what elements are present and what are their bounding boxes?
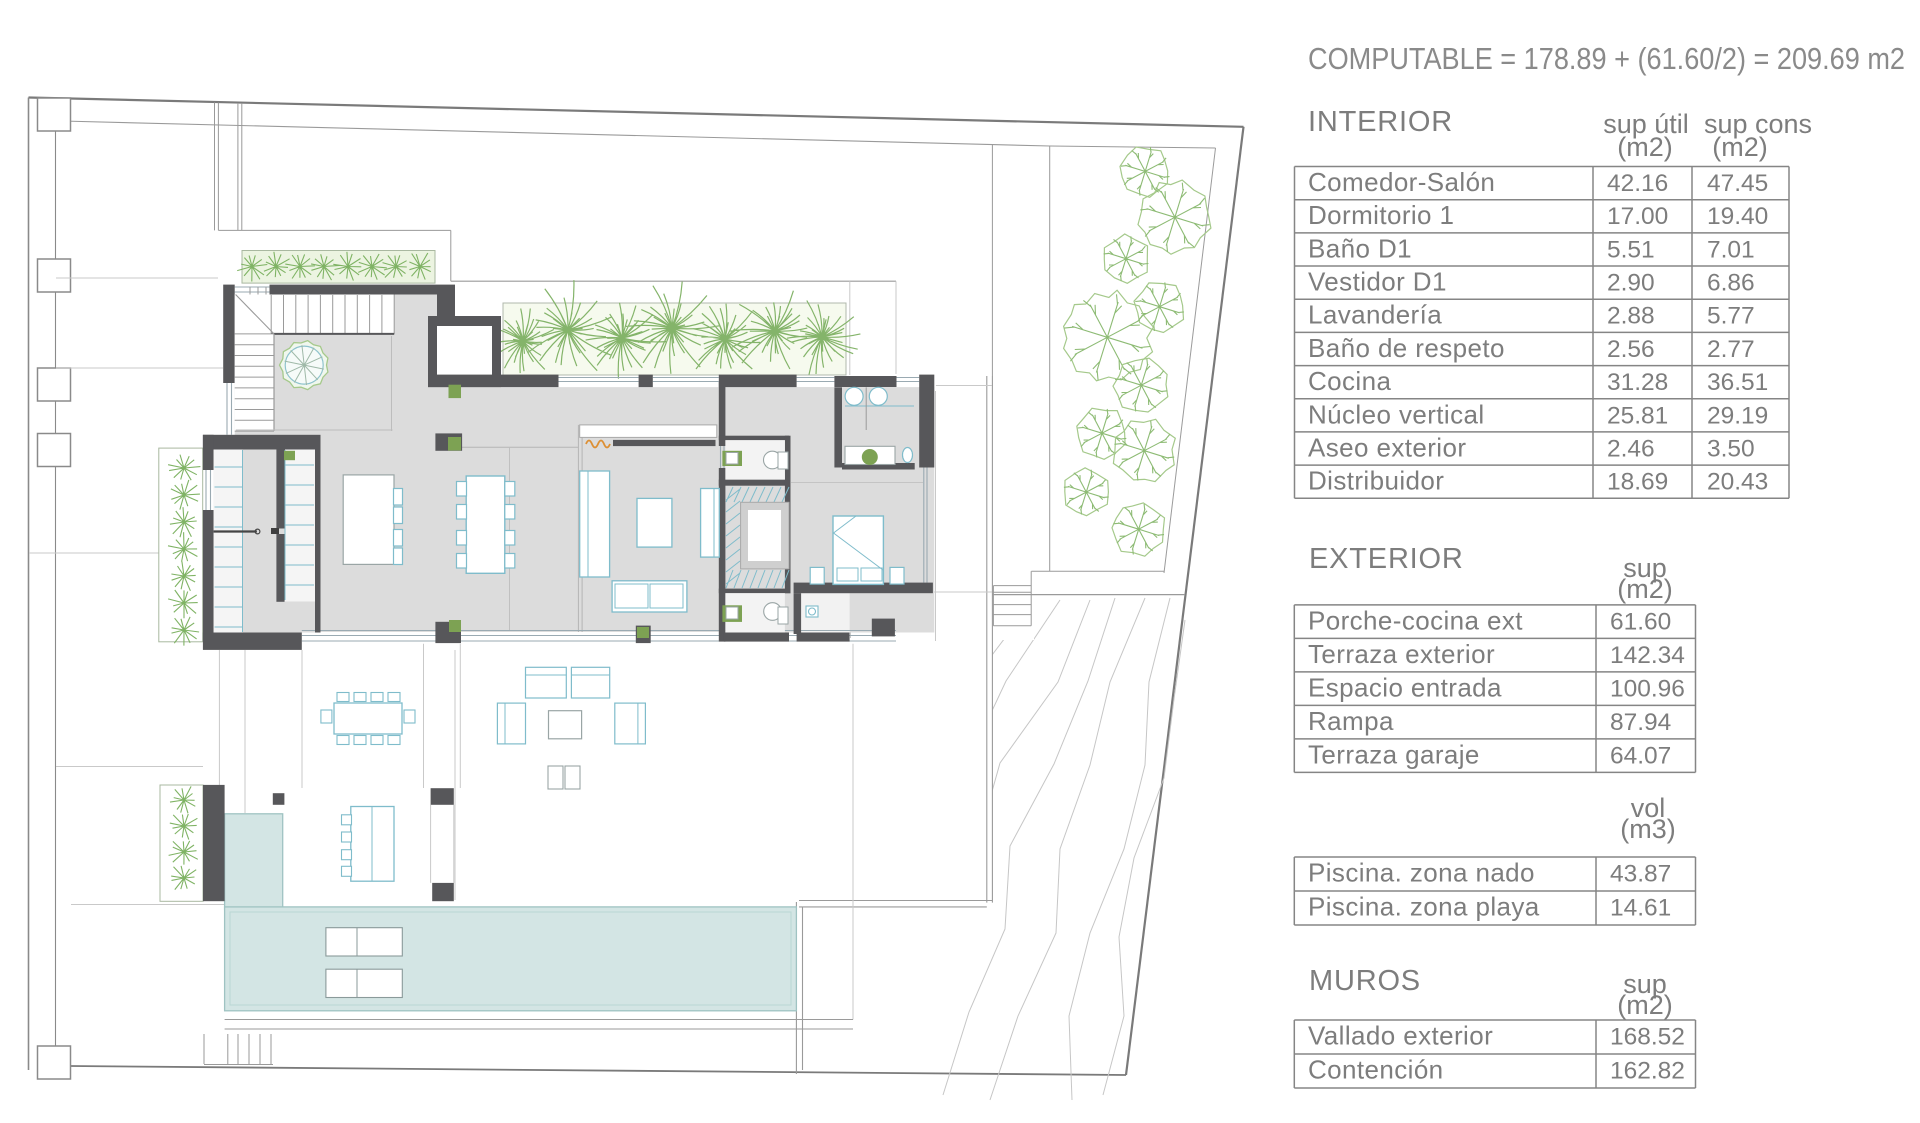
- svg-text:25.81: 25.81: [1607, 402, 1668, 429]
- svg-text:EXTERIOR: EXTERIOR: [1309, 543, 1464, 575]
- svg-text:Comedor-Salón: Comedor-Salón: [1308, 167, 1495, 197]
- svg-text:Dormitorio 1: Dormitorio 1: [1308, 200, 1454, 230]
- svg-text:Baño D1: Baño D1: [1308, 233, 1412, 263]
- svg-text:Vestidor D1: Vestidor D1: [1308, 267, 1447, 297]
- svg-text:142.34: 142.34: [1610, 642, 1685, 669]
- svg-text:36.51: 36.51: [1707, 369, 1768, 396]
- svg-text:47.45: 47.45: [1707, 170, 1768, 197]
- svg-text:Distribuidor: Distribuidor: [1308, 466, 1444, 496]
- svg-text:(m2): (m2): [1712, 132, 1768, 162]
- svg-text:43.87: 43.87: [1610, 861, 1671, 888]
- svg-text:19.40: 19.40: [1707, 203, 1768, 230]
- svg-text:COMPUTABLE = 178.89 + (61.60/2: COMPUTABLE = 178.89 + (61.60/2) = 209.69…: [1308, 41, 1905, 76]
- svg-text:31.28: 31.28: [1607, 369, 1668, 396]
- svg-text:(m2): (m2): [1617, 132, 1673, 162]
- svg-text:Lavandería: Lavandería: [1308, 300, 1442, 330]
- svg-text:6.86: 6.86: [1707, 270, 1755, 297]
- svg-text:61.60: 61.60: [1610, 608, 1671, 635]
- svg-text:Vallado exterior: Vallado exterior: [1308, 1021, 1493, 1051]
- svg-text:14.61: 14.61: [1610, 895, 1671, 922]
- svg-text:162.82: 162.82: [1610, 1058, 1685, 1085]
- svg-text:Porche-cocina ext: Porche-cocina ext: [1308, 605, 1523, 635]
- svg-text:Terraza garaje: Terraza garaje: [1308, 739, 1480, 769]
- svg-text:100.96: 100.96: [1610, 675, 1685, 702]
- svg-text:2.77: 2.77: [1707, 336, 1755, 363]
- svg-text:5.77: 5.77: [1707, 303, 1755, 330]
- svg-text:MUROS: MUROS: [1309, 965, 1421, 997]
- svg-text:Espacio entrada: Espacio entrada: [1308, 672, 1502, 702]
- svg-text:(m3): (m3): [1620, 814, 1676, 844]
- svg-text:168.52: 168.52: [1610, 1024, 1685, 1051]
- svg-text:(m2): (m2): [1617, 990, 1673, 1020]
- svg-text:29.19: 29.19: [1707, 402, 1768, 429]
- svg-text:Terraza exterior: Terraza exterior: [1308, 639, 1495, 669]
- svg-text:Piscina. zona nado: Piscina. zona nado: [1308, 858, 1535, 888]
- svg-text:2.46: 2.46: [1607, 435, 1655, 462]
- svg-text:INTERIOR: INTERIOR: [1308, 106, 1453, 138]
- svg-text:42.16: 42.16: [1607, 170, 1668, 197]
- svg-text:3.50: 3.50: [1707, 435, 1755, 462]
- svg-text:18.69: 18.69: [1607, 469, 1668, 496]
- svg-text:20.43: 20.43: [1707, 469, 1768, 496]
- svg-text:7.01: 7.01: [1707, 236, 1755, 263]
- svg-text:Rampa: Rampa: [1308, 706, 1394, 736]
- svg-text:Núcleo vertical: Núcleo vertical: [1308, 399, 1485, 429]
- svg-text:Baño de respeto: Baño de respeto: [1308, 333, 1505, 363]
- svg-text:Contención: Contención: [1308, 1055, 1444, 1085]
- svg-text:Piscina. zona playa: Piscina. zona playa: [1308, 892, 1540, 922]
- svg-text:64.07: 64.07: [1610, 742, 1671, 769]
- svg-text:2.88: 2.88: [1607, 303, 1655, 330]
- svg-text:2.90: 2.90: [1607, 270, 1655, 297]
- svg-text:5.51: 5.51: [1607, 236, 1655, 263]
- svg-text:(m2): (m2): [1617, 574, 1673, 604]
- svg-text:17.00: 17.00: [1607, 203, 1668, 230]
- svg-text:Cocina: Cocina: [1308, 366, 1391, 396]
- svg-text:87.94: 87.94: [1610, 709, 1671, 736]
- svg-text:2.56: 2.56: [1607, 336, 1655, 363]
- svg-text:Aseo exterior: Aseo exterior: [1308, 432, 1466, 462]
